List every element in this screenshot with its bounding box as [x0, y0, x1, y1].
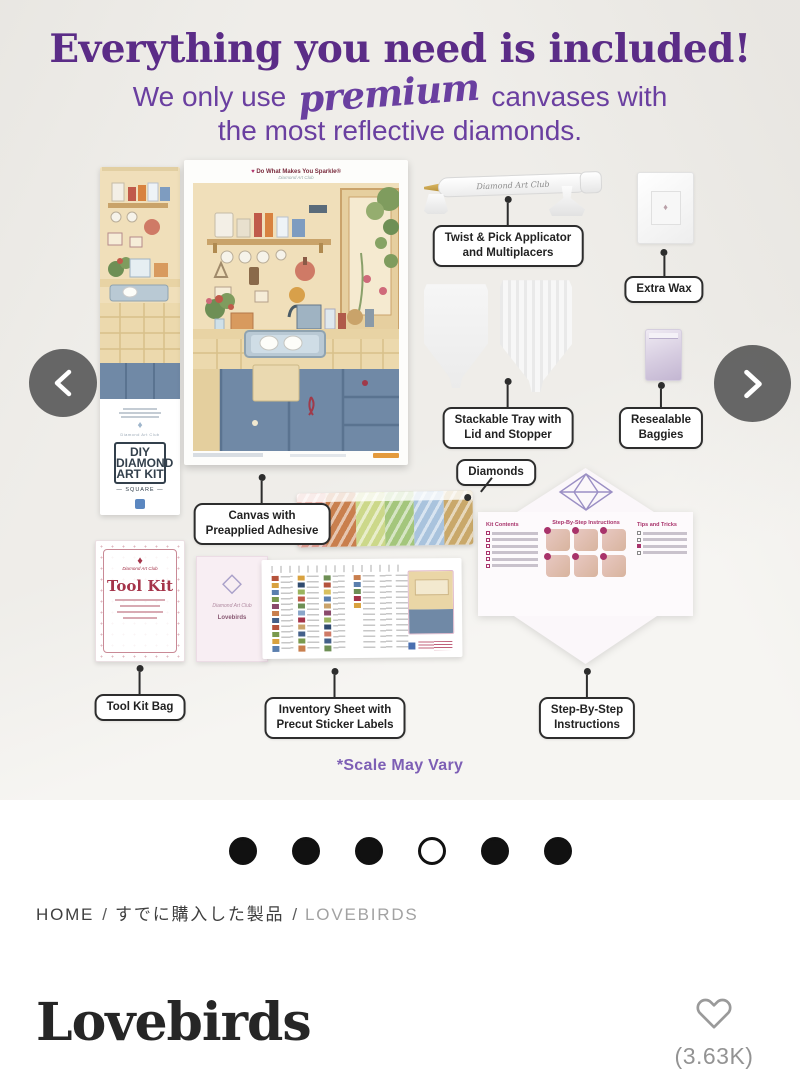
inventory-ticks	[272, 565, 402, 573]
product-page: Everything you need is included! We only…	[0, 0, 800, 1080]
carousel-dot-4[interactable]	[418, 837, 446, 865]
insert-diamond-outline: ◇	[197, 569, 267, 595]
kit-tray-lid	[424, 282, 488, 388]
diamond-outline-top	[542, 472, 630, 512]
product-title: Lovebirds	[36, 992, 311, 1053]
inventory-brand-text	[418, 641, 452, 650]
canvas-artwork	[193, 183, 399, 451]
insert-brand: Diamond Art Club	[197, 603, 267, 609]
inventory-sticker-column	[324, 575, 332, 651]
canvas-footer	[193, 451, 399, 459]
inventory-brand-logo	[408, 642, 415, 649]
box-diamond-logo: ♦	[100, 420, 180, 432]
hero-heading: Everything you need is included!	[0, 26, 800, 72]
carousel-dot-6[interactable]	[544, 837, 572, 865]
kit-toolkit-bag: ♦ Diamond Art Club Tool Kit	[95, 540, 185, 662]
carousel-slide: Everything you need is included! We only…	[0, 0, 800, 800]
diamond-bag-blue	[414, 491, 444, 546]
callout-diamonds: Diamonds	[456, 459, 536, 511]
inventory-code-column	[363, 575, 376, 651]
kit-insert-cover: ◇ Diamond Art Club Lovebirds	[196, 556, 268, 662]
baggie-zip	[649, 333, 678, 339]
box-square-icon	[135, 499, 145, 509]
chevron-left-icon	[50, 368, 76, 398]
subtitle-premium: premium	[297, 70, 480, 117]
breadcrumb-separator: /	[292, 905, 297, 924]
callout-tray: Stackable Tray with Lid and Stopper	[443, 378, 574, 449]
chevron-right-icon	[739, 368, 767, 400]
instructions-steps: Step-By-Step Instructions	[544, 520, 628, 577]
subtitle-pre: We only use	[133, 80, 287, 114]
box-micro-text	[100, 408, 180, 418]
breadcrumb-home[interactable]: HOME	[36, 905, 94, 924]
instructions-tips: Tips and Tricks	[637, 522, 687, 557]
toolkit-text-line	[115, 599, 165, 601]
callout-inventory: Inventory Sheet with Precut Sticker Labe…	[265, 668, 406, 739]
inventory-sticker-column	[298, 576, 306, 652]
toolkit-brand: Diamond Art Club	[104, 566, 176, 571]
carousel-dot-2[interactable]	[292, 837, 320, 865]
carousel-prev-button[interactable]	[29, 349, 97, 417]
heart-outline-icon	[695, 996, 733, 1032]
toolkit-text-line	[120, 605, 160, 607]
kit-extra-wax: ♦	[637, 172, 694, 244]
box-brand: Diamond Art Club	[100, 432, 180, 437]
wax-label: ♦	[651, 191, 681, 225]
kit-resealable-baggie	[645, 329, 682, 381]
kit-tray-ridged	[500, 278, 572, 392]
callout-applicator: Twist & Pick Applicator and Multiplacers	[433, 196, 584, 267]
callout-extra-wax: Extra Wax	[624, 249, 703, 303]
breadcrumb-separator: /	[102, 905, 107, 924]
subtitle-post: canvases with	[491, 80, 667, 114]
callout-instructions: Step-By-Step Instructions	[539, 668, 635, 739]
canvas-header: ♥ Do What Makes You Sparkle® Diamond Art…	[193, 169, 399, 181]
inventory-code-column	[380, 575, 393, 651]
carousel-dot-5[interactable]	[481, 837, 509, 865]
inventory-sticker-column	[272, 576, 280, 652]
kit-inventory-sheet	[261, 558, 462, 659]
box-diy-badge: DIY DIAMOND ART KIT	[114, 442, 166, 484]
kit-canvas: ♥ Do What Makes You Sparkle® Diamond Art…	[184, 160, 408, 465]
inventory-code-column	[333, 575, 346, 651]
pen-cap	[580, 171, 603, 194]
diamond-bag-orange	[326, 493, 356, 548]
inventory-artwork-thumbnail	[408, 570, 455, 634]
toolkit-text-line	[123, 617, 157, 619]
box-spine-artwork	[100, 167, 180, 399]
toolkit-diamond-logo: ♦	[104, 556, 176, 566]
hero-subtitle: We only use premium canvases with the mo…	[0, 76, 800, 148]
instructions-bottom-flap	[514, 616, 657, 664]
callout-canvas: Canvas with Preapplied Adhesive	[194, 474, 331, 545]
favorite-count: (3.63K)	[666, 1043, 762, 1070]
breadcrumb-current: LOVEBIRDS	[305, 905, 419, 924]
favorite-widget: (3.63K)	[666, 996, 762, 1070]
product-box-spine: ♦ Diamond Art Club DIY DIAMOND ART KIT —…	[100, 167, 180, 515]
insert-title: Lovebirds	[197, 615, 267, 621]
diamond-bag-green	[385, 491, 415, 546]
canvas-header-brand: Diamond Art Club	[193, 175, 399, 181]
inventory-sticker-column	[354, 575, 361, 615]
diamond-bag-yellow-green	[355, 492, 385, 547]
box-square-label: — SQUARE —	[100, 487, 180, 493]
carousel-dots	[0, 837, 800, 865]
scale-note: *Scale May Vary	[0, 757, 800, 775]
carousel-dot-3[interactable]	[355, 837, 383, 865]
toolkit-bag-panel: ♦ Diamond Art Club Tool Kit	[103, 549, 177, 653]
instructions-kit-contents: Kit Contents	[486, 522, 538, 570]
inventory-code-column	[396, 575, 409, 651]
box-spine-label: ♦ Diamond Art Club DIY DIAMOND ART KIT —…	[100, 399, 180, 515]
inventory-code-column	[281, 576, 294, 652]
toolkit-title: Tool Kit	[104, 577, 176, 595]
toolkit-text-line	[117, 611, 163, 613]
breadcrumb: HOME/すでに購入した製品/LOVEBIRDS	[36, 900, 419, 925]
callout-baggies: Resealable Baggies	[619, 382, 703, 449]
callout-tool-kit: Tool Kit Bag	[95, 665, 186, 721]
carousel-next-button[interactable]	[714, 345, 791, 422]
subtitle-line2: the most reflective diamonds.	[0, 114, 800, 148]
inventory-code-column	[307, 575, 320, 651]
favorite-button[interactable]	[695, 996, 733, 1035]
breadcrumb-collection[interactable]: すでに購入した製品	[115, 905, 284, 924]
carousel-dot-1[interactable]	[229, 837, 257, 865]
